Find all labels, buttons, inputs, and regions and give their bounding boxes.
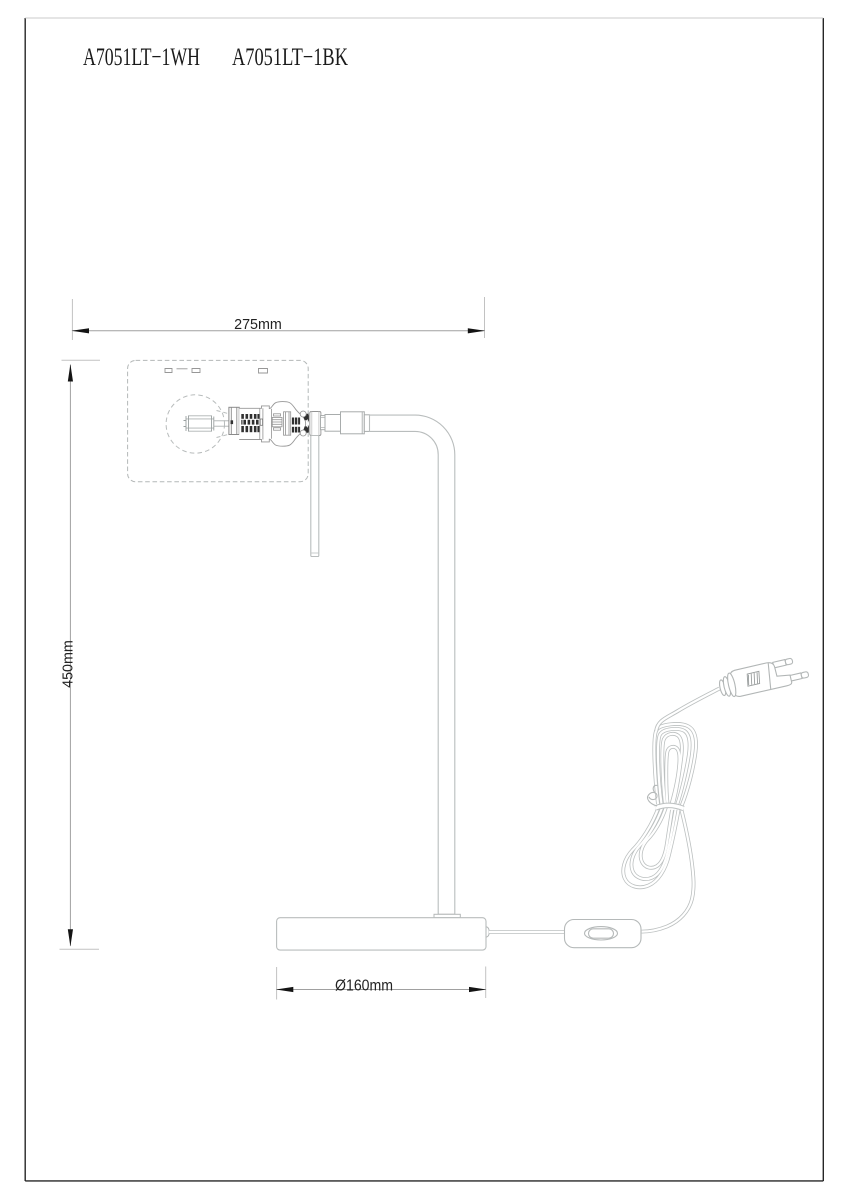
svg-text:A7051LT−1WH: A7051LT−1WH [83,42,200,71]
svg-text:450mm: 450mm [61,640,77,688]
svg-text:A7051LT−1BK: A7051LT−1BK [232,42,348,71]
svg-text:Ø160mm: Ø160mm [335,978,393,995]
svg-text:275mm: 275mm [234,317,282,333]
